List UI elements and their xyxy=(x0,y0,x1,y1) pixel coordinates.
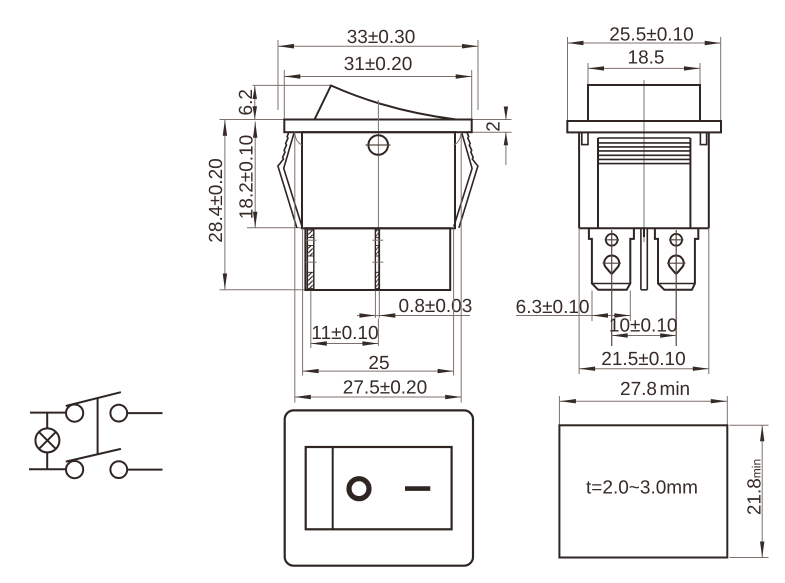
svg-text:25: 25 xyxy=(368,353,389,374)
svg-text:33±0.30: 33±0.30 xyxy=(347,27,416,48)
svg-text:min: min xyxy=(660,379,691,400)
svg-text:t=2.0~3.0mm: t=2.0~3.0mm xyxy=(586,478,698,499)
svg-text:2: 2 xyxy=(484,121,505,132)
svg-text:27.5±0.20: 27.5±0.20 xyxy=(343,378,427,399)
svg-text:10±0.10: 10±0.10 xyxy=(609,316,678,337)
svg-text:28.4±0.20: 28.4±0.20 xyxy=(206,158,227,242)
svg-text:6.2: 6.2 xyxy=(236,89,257,115)
svg-text:18.2±0.10: 18.2±0.10 xyxy=(237,135,258,219)
svg-text:18.5: 18.5 xyxy=(628,48,665,69)
svg-text:11±0.10: 11±0.10 xyxy=(311,323,378,344)
svg-text:21.5±0.10: 21.5±0.10 xyxy=(601,349,685,370)
svg-text:31±0.20: 31±0.20 xyxy=(344,54,413,75)
svg-text:27.8: 27.8 xyxy=(620,379,657,400)
svg-text:25.5±0.10: 25.5±0.10 xyxy=(609,25,693,46)
svg-text:6.3±0.10: 6.3±0.10 xyxy=(516,297,590,318)
